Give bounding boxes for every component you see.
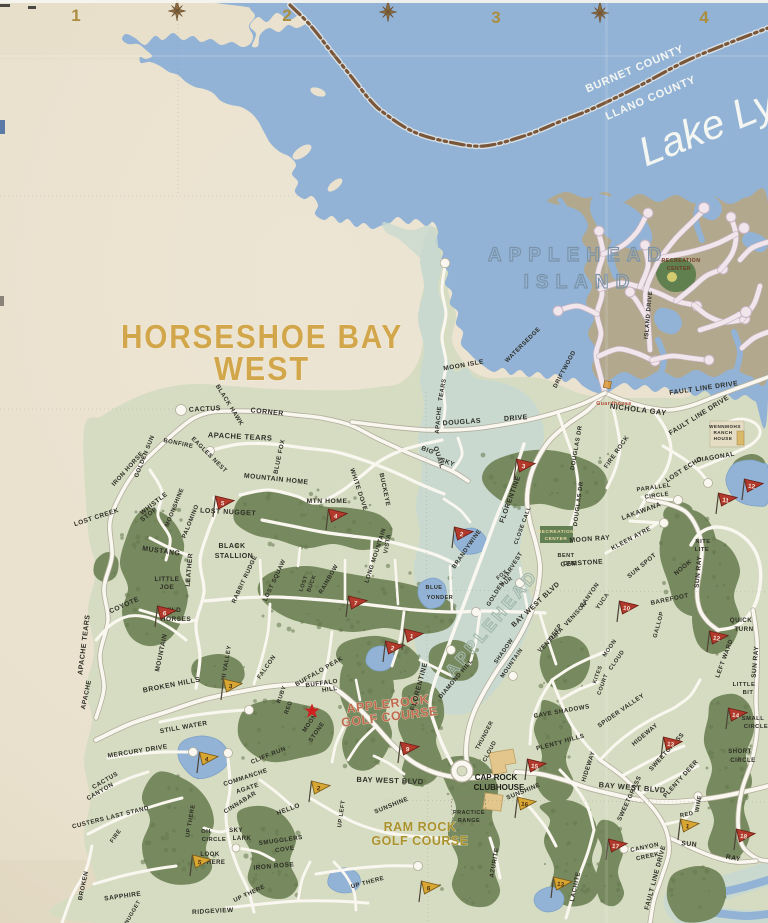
- svg-text:LARK: LARK: [233, 836, 252, 842]
- svg-text:BENT: BENT: [558, 553, 575, 559]
- svg-text:SMALL: SMALL: [742, 716, 764, 722]
- svg-text:HOUSE: HOUSE: [714, 436, 733, 441]
- svg-text:YONDER: YONDER: [427, 595, 454, 601]
- svg-text:ISLAND: ISLAND: [524, 272, 637, 293]
- svg-text:GOLF COURSE: GOLF COURSE: [371, 834, 468, 848]
- svg-text:SKY: SKY: [229, 828, 243, 834]
- svg-text:RAM ROCK: RAM ROCK: [384, 820, 457, 834]
- svg-text:RECREATION: RECREATION: [662, 258, 701, 264]
- svg-text:CENTER: CENTER: [545, 536, 568, 542]
- svg-text:CIRCLE: CIRCLE: [202, 837, 227, 843]
- svg-text:CAP ROCK: CAP ROCK: [475, 773, 518, 782]
- svg-text:LOOK: LOOK: [200, 852, 219, 858]
- svg-text:PRACTICE: PRACTICE: [453, 810, 485, 816]
- svg-text:WENNMOHS: WENNMOHS: [709, 424, 741, 429]
- svg-text:MTN HOME: MTN HOME: [306, 498, 347, 505]
- svg-text:1: 1: [71, 6, 80, 25]
- svg-text:STALLION: STALLION: [215, 553, 253, 560]
- svg-text:LITTLE: LITTLE: [733, 682, 756, 688]
- svg-text:JOE: JOE: [160, 584, 175, 591]
- svg-text:BLACK: BLACK: [219, 543, 246, 550]
- svg-text:OH: OH: [201, 829, 211, 835]
- svg-text:CIRCLE: CIRCLE: [730, 758, 755, 764]
- svg-text:BLUE: BLUE: [426, 585, 443, 591]
- svg-text:3: 3: [491, 8, 500, 27]
- svg-text:RANGE: RANGE: [458, 818, 480, 824]
- svg-text:4: 4: [699, 8, 709, 27]
- svg-text:TURN: TURN: [734, 626, 753, 633]
- svg-text:QUICK: QUICK: [730, 617, 752, 624]
- svg-text:WEST: WEST: [214, 350, 310, 387]
- svg-text:LITTLE: LITTLE: [154, 576, 179, 583]
- svg-text:NITE: NITE: [695, 539, 710, 545]
- svg-text:2: 2: [282, 6, 291, 25]
- svg-text:CIRCLE: CIRCLE: [744, 724, 768, 730]
- svg-text:ONE: ONE: [563, 561, 576, 567]
- svg-text:SHORT: SHORT: [728, 749, 752, 755]
- svg-text:RANCH: RANCH: [713, 430, 732, 435]
- svg-text:LITE: LITE: [695, 547, 710, 553]
- svg-text:SUN: SUN: [681, 840, 697, 848]
- svg-text:CENTER: CENTER: [667, 266, 691, 272]
- svg-text:BIT: BIT: [743, 690, 754, 696]
- svg-text:APPLEHEAD: APPLEHEAD: [488, 245, 668, 266]
- svg-text:RECREATION: RECREATION: [538, 529, 574, 535]
